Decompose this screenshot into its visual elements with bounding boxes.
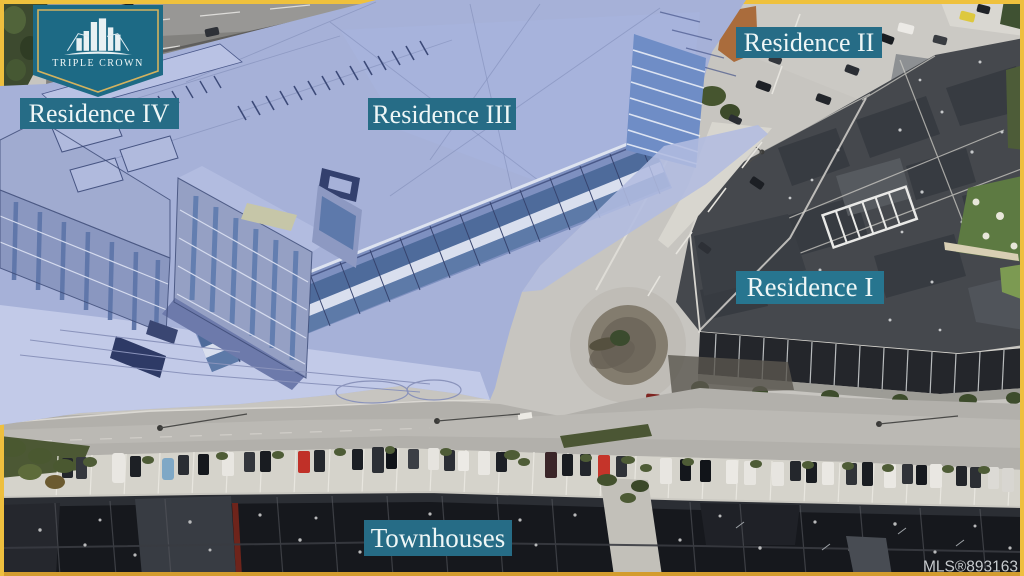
svg-text:MLS®893163: MLS®893163 bbox=[923, 559, 1018, 576]
svg-text:TRIPLE CROWN: TRIPLE CROWN bbox=[52, 58, 144, 69]
svg-text:Residence IV: Residence IV bbox=[29, 99, 170, 128]
svg-text:Townhouses: Townhouses bbox=[371, 523, 506, 553]
svg-text:Residence II: Residence II bbox=[744, 28, 875, 57]
svg-text:Residence III: Residence III bbox=[372, 100, 511, 129]
svg-text:Residence I: Residence I bbox=[747, 272, 874, 302]
